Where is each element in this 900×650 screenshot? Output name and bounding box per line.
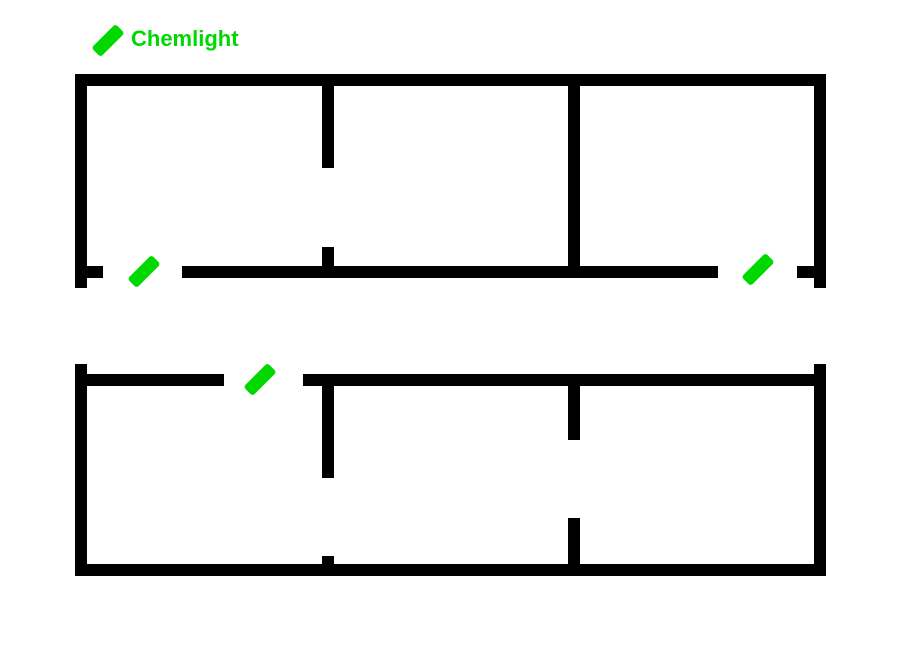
- chemlight-legend-icon: [91, 23, 124, 56]
- building-top-interior-wall-1-upper: [322, 86, 334, 168]
- building-bottom-bottom-wall: [75, 564, 826, 576]
- building-top-bottom-wall-right-stub: [797, 266, 814, 278]
- building-bottom-interior-wall-1-lower: [322, 556, 334, 564]
- building-bottom-top-wall-left: [87, 374, 224, 386]
- building-top-interior-wall-2: [568, 86, 580, 266]
- building-top-top-wall: [75, 74, 826, 86]
- floorplan: Chemlight: [0, 0, 900, 650]
- chemlight-marker-1: [127, 254, 160, 287]
- building-bottom-top-wall-main: [303, 374, 826, 386]
- building-bottom-interior-wall-2-lower: [568, 518, 580, 564]
- building-top-interior-wall-1-lower: [322, 247, 334, 266]
- building-top-left-wall: [75, 74, 87, 288]
- building-top-right-wall: [814, 74, 826, 288]
- building-top-bottom-wall-main: [182, 266, 718, 278]
- chemlight-marker-2: [741, 252, 774, 285]
- building-bottom-left-wall: [75, 364, 87, 576]
- chemlight-marker-3: [243, 362, 276, 395]
- building-top-bottom-wall-left-stub: [87, 266, 103, 278]
- building-bottom-interior-wall-1-upper: [322, 386, 334, 478]
- building-bottom-interior-wall-2-upper: [568, 386, 580, 440]
- legend-label: Chemlight: [131, 26, 239, 52]
- building-bottom-right-wall: [814, 364, 826, 576]
